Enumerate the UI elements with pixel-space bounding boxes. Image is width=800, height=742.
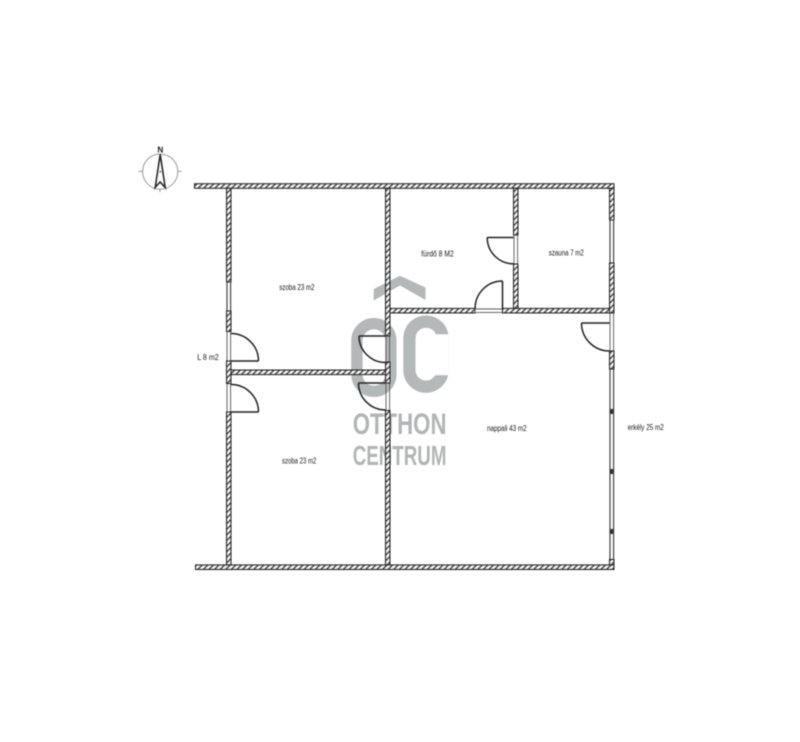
svg-text:N: N: [157, 146, 163, 155]
svg-text:fürdő 8 M2: fürdő 8 M2: [421, 249, 454, 258]
svg-text:CENTRUM: CENTRUM: [353, 440, 447, 471]
svg-text:szoba 23 m2: szoba 23 m2: [279, 283, 315, 292]
svg-text:szoba 23 m2: szoba 23 m2: [282, 457, 317, 466]
svg-text:OTTHON: OTTHON: [353, 408, 447, 441]
svg-text:szauna 7 m2: szauna 7 m2: [549, 249, 584, 258]
svg-text:L 8 m2: L 8 m2: [197, 353, 219, 362]
svg-text:erkély 25 m2: erkély 25 m2: [628, 423, 665, 432]
svg-text:nappali 43 m2: nappali 43 m2: [487, 424, 527, 433]
